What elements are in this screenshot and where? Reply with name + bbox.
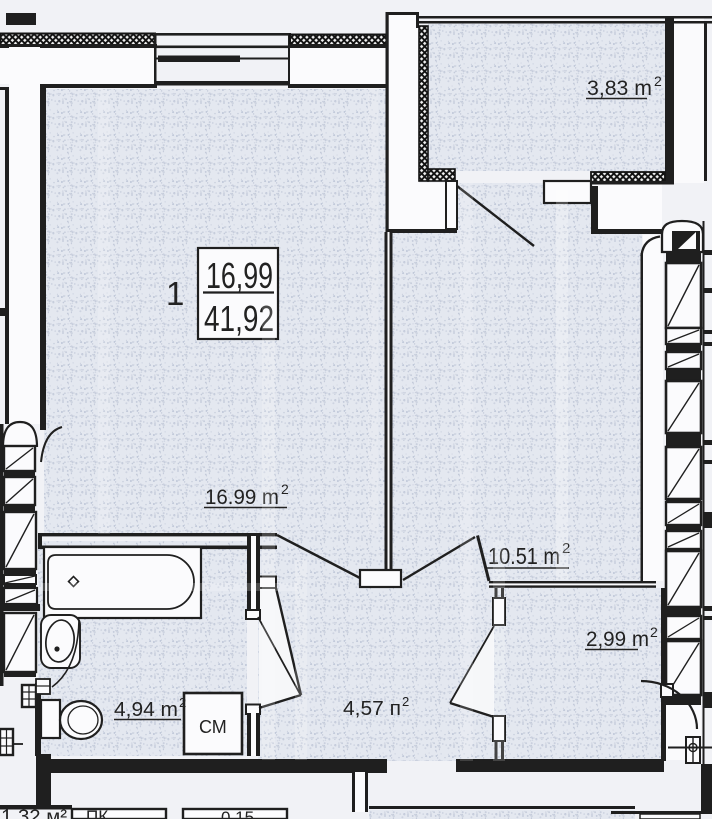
svg-text:16,99: 16,99 xyxy=(206,255,273,296)
svg-text:1,32 м²: 1,32 м² xyxy=(1,807,67,819)
svg-text:3,83 m: 3,83 m xyxy=(587,77,652,100)
svg-text:2: 2 xyxy=(179,695,186,710)
svg-text:4,57 п: 4,57 п xyxy=(343,698,401,720)
svg-text:2: 2 xyxy=(654,73,662,89)
svg-text:4,94 m: 4,94 m xyxy=(114,699,178,721)
svg-text:СМ: СМ xyxy=(199,717,227,737)
svg-text:2: 2 xyxy=(402,694,409,709)
svg-text:0,15: 0,15 xyxy=(221,808,254,819)
svg-text:2: 2 xyxy=(281,481,289,497)
svg-text:ПК: ПК xyxy=(86,807,108,819)
svg-text:1: 1 xyxy=(166,275,184,312)
svg-text:2,99 m: 2,99 m xyxy=(586,628,649,651)
svg-text:2: 2 xyxy=(650,624,658,640)
